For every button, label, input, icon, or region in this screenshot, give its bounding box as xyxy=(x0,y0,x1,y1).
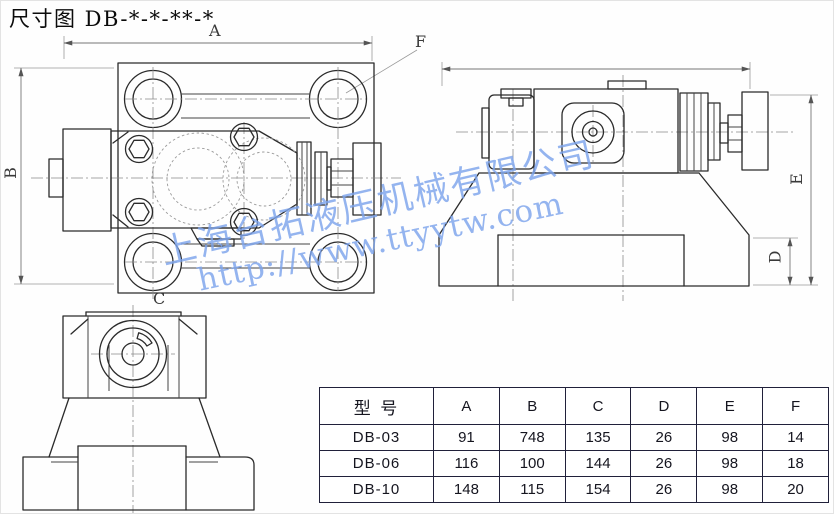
side-view-drawing xyxy=(439,62,818,301)
value-cell: 91 xyxy=(434,425,500,451)
column-header-b: B xyxy=(499,388,565,425)
value-cell: 116 xyxy=(434,451,500,477)
dimension-drawing-page: .ln { stroke:#2b2b2b; stroke-width:1.3; … xyxy=(0,0,834,514)
value-cell: 14 xyxy=(763,425,829,451)
value-cell: 154 xyxy=(565,477,631,503)
column-header-f: F xyxy=(763,388,829,425)
value-cell: 100 xyxy=(499,451,565,477)
column-header-model: 型 号 xyxy=(320,388,434,425)
table-header-row: 型 号 A B C D E F xyxy=(320,388,829,425)
value-cell: 148 xyxy=(434,477,500,503)
page-title: 尺寸图 DB-*-*-**-* xyxy=(9,3,215,33)
dim-label-c: C xyxy=(153,291,165,307)
value-cell: 18 xyxy=(763,451,829,477)
value-cell: 26 xyxy=(631,477,697,503)
dim-label-a: A xyxy=(209,23,221,39)
table-row: DB-03 91 748 135 26 98 14 xyxy=(320,425,829,451)
value-cell: 26 xyxy=(631,451,697,477)
column-header-d: D xyxy=(631,388,697,425)
value-cell: 98 xyxy=(697,425,763,451)
model-cell: DB-10 xyxy=(320,477,434,503)
model-cell: DB-03 xyxy=(320,425,434,451)
model-cell: DB-06 xyxy=(320,451,434,477)
top-view-drawing xyxy=(14,36,417,302)
dim-label-b: B xyxy=(3,167,19,179)
dimension-table: 型 号 A B C D E F DB-03 91 748 135 26 98 1… xyxy=(319,387,829,503)
column-header-c: C xyxy=(565,388,631,425)
column-header-e: E xyxy=(697,388,763,425)
value-cell: 26 xyxy=(631,425,697,451)
table-row: DB-06 116 100 144 26 98 18 xyxy=(320,451,829,477)
dim-label-d: D xyxy=(767,251,783,264)
value-cell: 115 xyxy=(499,477,565,503)
dim-label-e: E xyxy=(789,173,805,185)
value-cell: 98 xyxy=(697,451,763,477)
value-cell: 144 xyxy=(565,451,631,477)
table-row: DB-10 148 115 154 26 98 20 xyxy=(320,477,829,503)
front-view-drawing xyxy=(23,305,254,514)
value-cell: 748 xyxy=(499,425,565,451)
column-header-a: A xyxy=(434,388,500,425)
value-cell: 135 xyxy=(565,425,631,451)
value-cell: 20 xyxy=(763,477,829,503)
dim-label-f: F xyxy=(415,34,426,50)
value-cell: 98 xyxy=(697,477,763,503)
